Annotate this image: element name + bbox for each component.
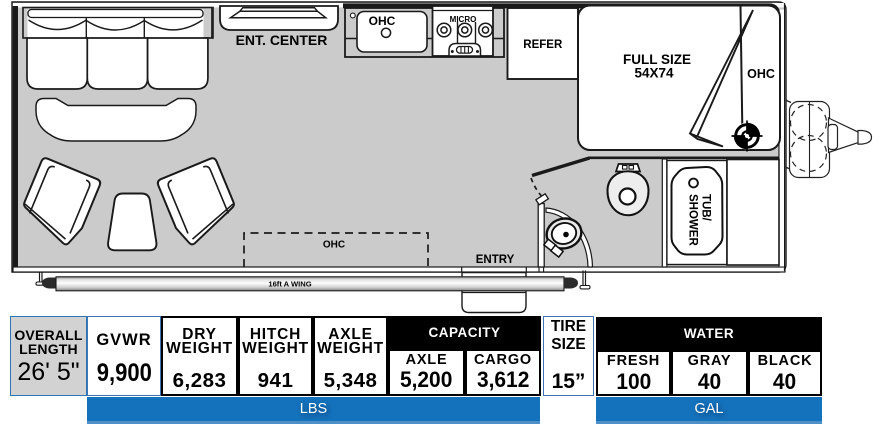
svg-text:ENT. CENTER: ENT. CENTER [236, 32, 328, 48]
svg-text:OHC: OHC [369, 14, 396, 28]
svg-text:REFER: REFER [523, 39, 563, 51]
svg-text:MICRO: MICRO [450, 15, 477, 24]
svg-text:OHC: OHC [747, 67, 775, 81]
svg-text:ENTRY: ENTRY [476, 254, 515, 266]
svg-text:TUB/: TUB/ [700, 194, 712, 222]
svg-text:54X74: 54X74 [634, 66, 674, 81]
svg-text:16ft A WING: 16ft A WING [268, 280, 311, 289]
svg-text:OHC: OHC [323, 240, 345, 251]
svg-text:SHOWER: SHOWER [687, 194, 699, 246]
